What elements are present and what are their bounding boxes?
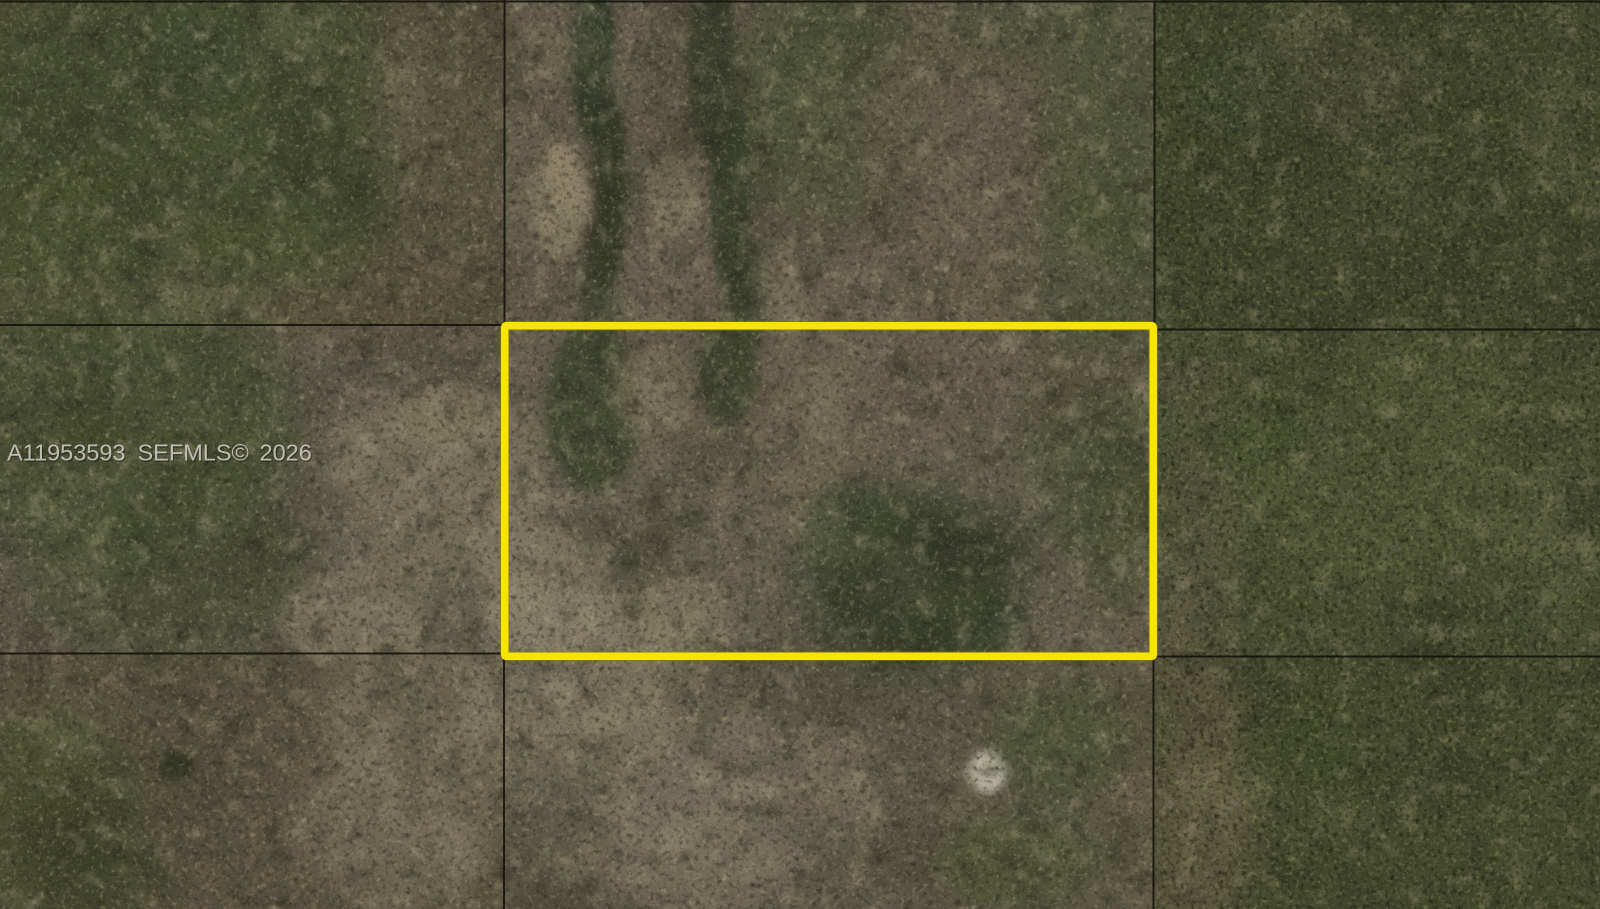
svg-text:A11953593SEFMLS©2026: A11953593SEFMLS©2026 [7,440,312,466]
